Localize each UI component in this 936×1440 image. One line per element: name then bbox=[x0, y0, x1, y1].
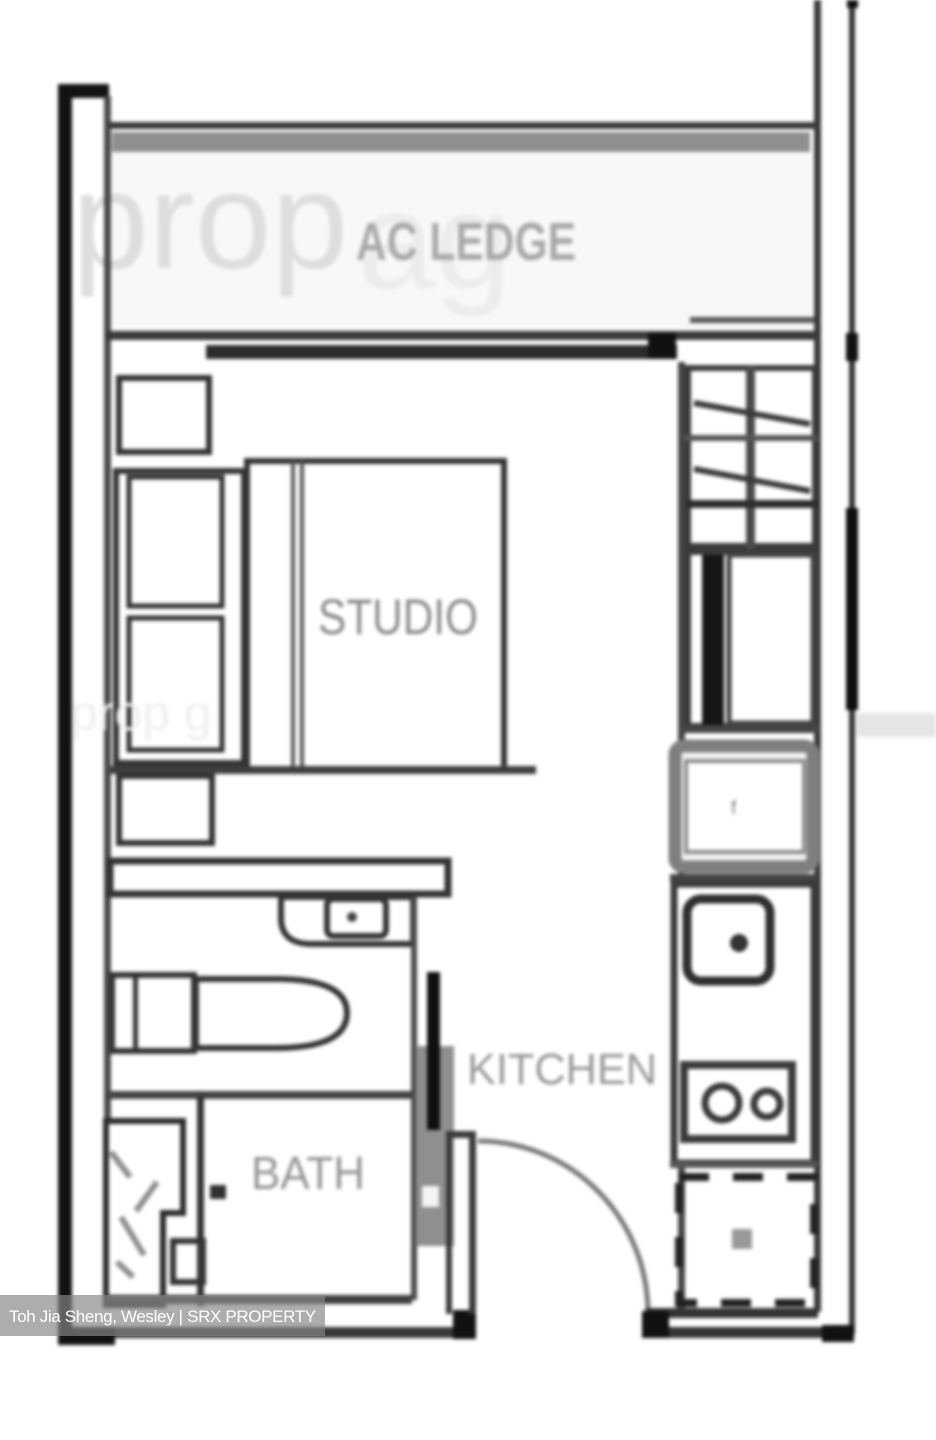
svg-text:prop g: prop g bbox=[70, 685, 212, 741]
svg-text:BATH: BATH bbox=[251, 1147, 365, 1199]
svg-text:STUDIO: STUDIO bbox=[318, 589, 478, 645]
svg-text:f: f bbox=[731, 798, 737, 819]
svg-text:KITCHEN: KITCHEN bbox=[467, 1045, 657, 1094]
svg-text:AC LEDGE: AC LEDGE bbox=[356, 212, 576, 272]
svg-text:prop: prop bbox=[72, 144, 348, 298]
